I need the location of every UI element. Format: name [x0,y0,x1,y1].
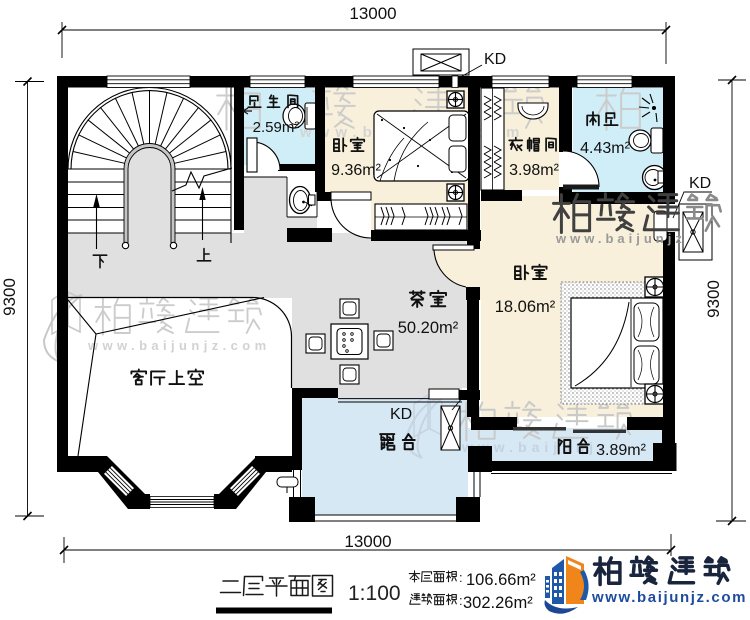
svg-text:KD: KD [689,175,711,192]
svg-text:9300: 9300 [0,278,19,316]
svg-text:4.43m²: 4.43m² [580,140,630,157]
svg-text::: : [459,570,463,585]
svg-text:www.baijunjz.com: www.baijunjz.com [87,338,271,353]
svg-text:13000: 13000 [349,4,396,23]
svg-text:2.59m²: 2.59m² [253,119,300,136]
svg-text:106.66m²: 106.66m² [466,571,536,589]
svg-text:www.baijunjz.com: www.baijunjz.com [591,589,747,606]
svg-text:9.36m²: 9.36m² [331,162,381,179]
svg-text:1:100: 1:100 [348,582,401,605]
svg-text:www.baijunjz: www.baijunjz [555,231,686,246]
svg-text:KD: KD [390,406,412,423]
svg-text:3.89m²: 3.89m² [596,442,646,459]
svg-text:18.06m²: 18.06m² [495,298,556,316]
svg-text:KD: KD [484,51,506,68]
svg-text:13000: 13000 [344,532,391,551]
svg-text:50.20m²: 50.20m² [398,319,459,337]
svg-text:302.26m²: 302.26m² [463,594,533,612]
svg-text:3.98m²: 3.98m² [509,162,559,179]
svg-text:9300: 9300 [704,280,723,318]
